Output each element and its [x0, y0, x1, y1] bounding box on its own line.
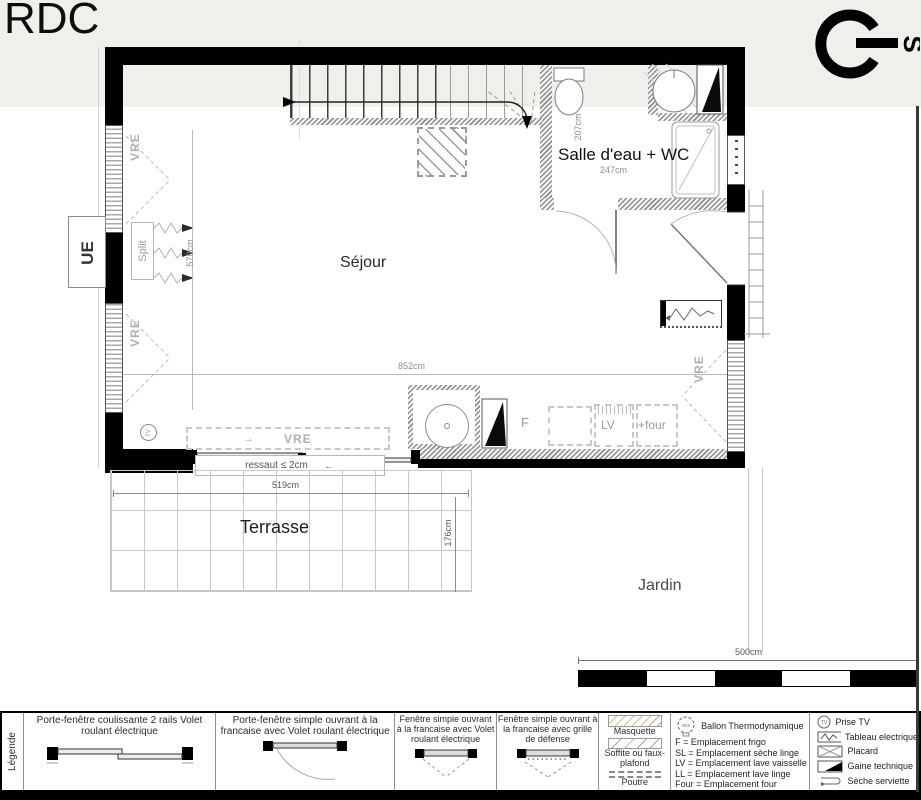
prise-tv-symbol: TV: [140, 424, 157, 441]
dim-tick: [113, 490, 114, 497]
dim-terrasse-height: 176cm: [443, 511, 453, 555]
wall-bottom: [418, 459, 745, 468]
code-frigo: F = Emplacement frigo: [675, 737, 766, 748]
symbol-label: Sèche serviette: [847, 776, 909, 786]
soffite-label: Soffite ou faux-plafond: [604, 749, 666, 769]
poutre-label: Poutre: [621, 778, 648, 788]
ballon-label: Ballon Thermodynamique: [701, 721, 803, 732]
wall-left: [105, 413, 123, 449]
legend-item-window-vre: Fenêtre simple ouvrant à la francaise av…: [395, 713, 497, 790]
ballon-icon-text: ecs: [682, 723, 690, 729]
legend-label: Fenêtre simple ouvrant à la francaise av…: [396, 715, 495, 745]
legend-heading-cell: Légende: [2, 713, 24, 790]
symbol-row: Sèche serviette: [811, 773, 918, 788]
seche-serviette-icon: [817, 775, 843, 787]
lv-hatch: [598, 406, 632, 414]
window-left-upper: [105, 125, 123, 233]
legend-item-surfaces: Masquette Soffite ou faux-plafond Poutre: [599, 713, 671, 790]
bathroom-fixtures: [540, 60, 745, 210]
dim-sejour-height: 570cm: [185, 231, 195, 275]
scale-label: 500cm: [735, 647, 762, 657]
scale-seg: [715, 671, 783, 686]
lave-vaisselle-label: LV: [601, 418, 615, 432]
entry-door-swing: [671, 211, 727, 224]
room-label-jardin: Jardin: [638, 577, 682, 595]
wall-right-corner: [727, 452, 745, 468]
legend: Légende Porte-fenêtre coulissante 2 rail…: [0, 711, 921, 792]
window-left-lower: [105, 303, 123, 413]
placard-icon: [817, 745, 843, 758]
legend-item-window-grille: Fenêtre simple ouvrant à la francaise av…: [497, 713, 600, 790]
tableau-electrique: [660, 300, 722, 328]
vre-label: VRE: [284, 432, 312, 446]
tableau-edge: [661, 301, 666, 326]
stairs-direction-arrow: [281, 88, 546, 132]
code-lave-linge: LL = Emplacement lave linge: [675, 769, 790, 780]
legend-label: Fenêtre simple ouvrant à la francaise av…: [498, 715, 598, 745]
bathroom-door-swing: [556, 211, 616, 274]
dim-terrasse-width: 519cm: [272, 480, 299, 490]
scale-seg: [647, 671, 715, 686]
dim-line: [113, 493, 469, 494]
dim-salle-eau-height: 207cm: [573, 105, 583, 149]
arrow-right: →: [243, 433, 254, 445]
dim-tick: [468, 490, 469, 497]
tableau-electrique-icon: [817, 731, 840, 743]
compass-icon: S: [798, 2, 920, 82]
masquette-swatch: [608, 715, 662, 727]
symbol-label: Tableau electrique: [845, 732, 918, 742]
wall-bottom-insulation: [418, 449, 745, 459]
symbol-row: Gaine technique: [811, 759, 918, 774]
tableau-zigzag-icon: [661, 301, 721, 327]
gaine-technique-kitchen: [481, 398, 509, 450]
symbol-row: Tableau electrique: [811, 730, 918, 745]
viewport-edge: [916, 106, 919, 800]
ue-unit-box: UE: [68, 216, 106, 288]
dim-line: [123, 374, 727, 375]
code-seche-linge: SL = Emplacement sèche linge: [675, 748, 799, 759]
room-label-terrasse: Terrasse: [240, 517, 309, 538]
scale-seg: [850, 671, 918, 686]
room-label-sejour: Séjour: [340, 254, 386, 272]
legend-label: Porte-fenêtre simple ouvrant à la franca…: [217, 715, 393, 737]
prise-tv-text: TV: [145, 429, 151, 437]
masquette-label: Masquette: [614, 727, 656, 737]
window-grille-icon: [513, 747, 583, 781]
svg-text:TV: TV: [821, 720, 828, 726]
frigo-label: F: [521, 415, 529, 430]
wall-left: [105, 65, 123, 125]
entry-door-leaf: [671, 224, 727, 283]
dim-sejour-width: 852cm: [398, 361, 425, 371]
floor-plan-sheet: RDC S: [0, 0, 921, 800]
sliding-door-icon: [45, 741, 195, 771]
exterior-railing: [744, 190, 770, 338]
garden-line: [762, 468, 763, 652]
compass-south-label: S: [898, 35, 920, 52]
window-vre-icon: [411, 747, 481, 781]
sink-placeholder: [548, 406, 592, 446]
symbol-label: Placard: [847, 746, 878, 756]
legend-item-sliding-door: Porte-fenêtre coulissante 2 rails Volet …: [24, 713, 216, 790]
code-four: Four = Emplacement four: [675, 779, 777, 790]
masquette-area: [417, 127, 467, 177]
symbol-label: Prise TV: [835, 717, 869, 727]
ballon-icon: ecs: [675, 715, 697, 737]
french-door-icon: [257, 739, 353, 783]
doors: [540, 195, 750, 300]
symbol-row: Placard: [811, 744, 918, 759]
scale-dim-line: [578, 660, 919, 661]
poutre-swatch: [609, 771, 661, 773]
legend-item-symbols: TV Prise TV Tableau electrique Placard: [810, 713, 919, 790]
ballon-row: ecs Ballon Thermodynamique: [675, 715, 803, 737]
scale-seg: [579, 671, 647, 686]
gaine-technique-icon: [817, 760, 843, 773]
bottom-bar: [0, 792, 921, 800]
ballon-thermodynamique: [425, 404, 469, 448]
legend-item-french-door: Porte-fenêtre simple ouvrant à la franca…: [216, 713, 395, 790]
vre-label: VRE: [128, 130, 142, 164]
four-label: +four: [638, 418, 666, 432]
legend-heading: Légende: [7, 732, 18, 771]
dim-salle-eau-width: 247cm: [600, 165, 627, 175]
vre-zone-dashed: → VRE: [186, 427, 390, 450]
prise-tv-icon: TV: [817, 715, 831, 729]
vre-label: VRE: [128, 316, 142, 350]
legend-item-appliances: ecs Ballon Thermodynamique F = Emplaceme…: [671, 713, 810, 790]
dim-line: [455, 497, 456, 592]
symbol-row: TV Prise TV: [811, 715, 918, 730]
scale-bar: [578, 670, 919, 687]
garden-line: [748, 468, 749, 652]
page-title: RDC: [4, 0, 99, 44]
vre-label: VRE: [692, 352, 706, 386]
code-lave-vaisselle: LV = Emplacement lave vaisselle: [675, 758, 807, 769]
window-right-lower: [727, 340, 745, 452]
legend-label: Porte-fenêtre coulissante 2 rails Volet …: [25, 715, 214, 737]
scale-tick: [578, 657, 579, 664]
ue-label: UE: [52, 218, 124, 288]
ballon-center: [444, 423, 450, 429]
scale-seg: [782, 671, 850, 686]
symbol-label: Gaine technique: [847, 761, 913, 771]
